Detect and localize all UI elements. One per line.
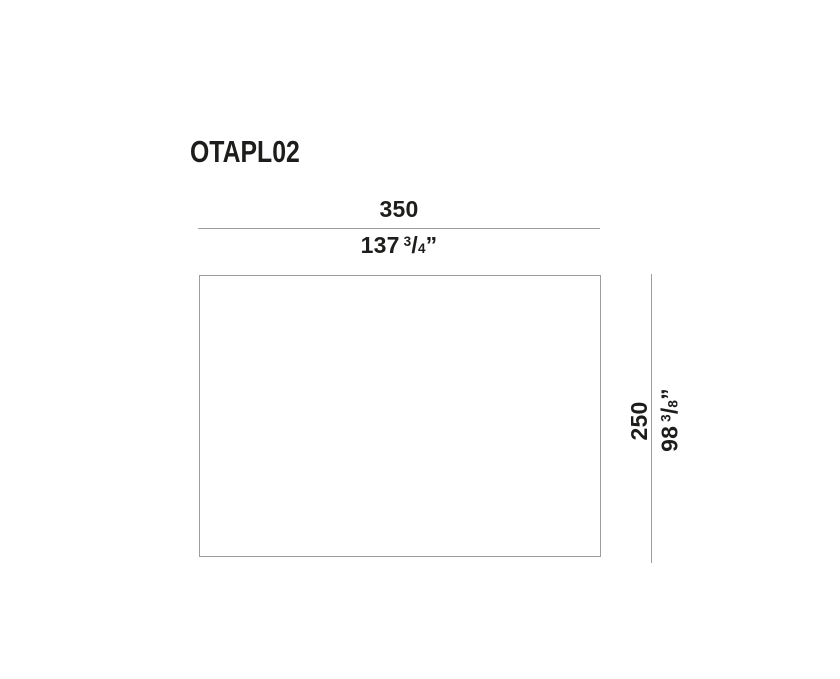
height-imperial-fraction-numerator: 3 <box>659 414 674 422</box>
width-imperial-whole: 137 <box>361 232 400 258</box>
height-metric-label: 250 <box>627 402 651 441</box>
width-imperial-fraction-slash: / <box>411 232 418 258</box>
height-imperial-fraction-slash: / <box>657 408 683 415</box>
height-imperial-whole: 98 <box>657 426 683 452</box>
width-imperial-fraction-denominator: 4 <box>418 241 426 256</box>
height-imperial-fraction-denominator: 8 <box>666 400 681 408</box>
product-outline <box>199 275 601 557</box>
width-dimension-line <box>198 228 600 229</box>
product-code-title: OTAPL02 <box>190 136 300 167</box>
height-imperial-unit-mark: ” <box>657 388 683 400</box>
width-imperial-unit-mark: ” <box>426 232 438 258</box>
dimension-drawing: OTAPL02 350 1373/4” 250 983/8” <box>0 0 840 679</box>
width-imperial-label: 1373/4” <box>198 230 600 261</box>
height-imperial-label: 983/8” <box>655 388 686 452</box>
width-metric-label: 350 <box>198 197 600 221</box>
